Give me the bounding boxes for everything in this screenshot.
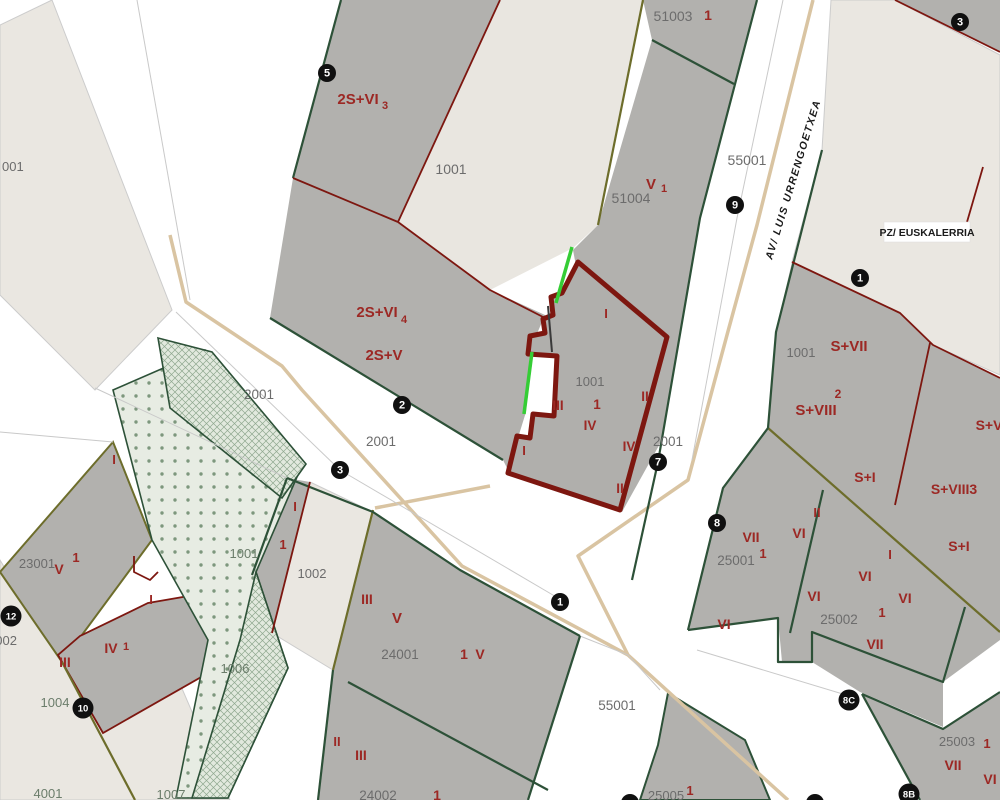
map-label: VII [866, 636, 883, 652]
svg-text:9: 9 [732, 200, 738, 212]
map-label: III [59, 654, 71, 670]
map-label: 51003 [654, 8, 693, 24]
map-label: 1 [704, 7, 712, 23]
map-label: 1 [983, 736, 990, 751]
map-label: 2001 [653, 434, 683, 449]
map-label: 2001 [244, 387, 274, 402]
map-label: 2S+V [365, 347, 402, 364]
map-label: VII [742, 529, 759, 545]
map-label: II [813, 505, 820, 520]
map-label: 24002 [359, 788, 397, 800]
map-label: I [293, 499, 297, 514]
map-label: 55001 [598, 698, 636, 713]
map-label: III [361, 591, 373, 607]
map-label: 1 [72, 550, 79, 565]
street-name-label: PZ/ EUSKALERRIA [879, 227, 975, 239]
map-label: I [888, 547, 892, 562]
map-label: 25001 [717, 553, 755, 568]
map-label: IV [584, 418, 597, 433]
map-label: II [641, 389, 649, 404]
map-label: 001 [2, 159, 24, 174]
map-label: 23001 [19, 556, 55, 571]
map-label: 2 [835, 387, 842, 401]
address-number-circle: 3 [331, 461, 349, 479]
map-label: 4 [401, 314, 408, 326]
map-label: 2001 [366, 434, 396, 449]
address-number-circle: 8C [839, 690, 860, 711]
map-label: 1 [123, 641, 129, 653]
map-label: VI [983, 771, 996, 787]
map-label: IV [623, 439, 636, 454]
address-number-circle: 10 [73, 698, 94, 719]
svg-text:3: 3 [957, 17, 963, 29]
svg-text:8B: 8B [903, 790, 915, 800]
address-number-circle: 1 [551, 593, 569, 611]
map-label: V [475, 646, 485, 662]
svg-text:3: 3 [337, 465, 343, 477]
address-number-circle: 12 [1, 606, 22, 627]
map-label: S+I [854, 469, 875, 485]
map-label: 4001 [34, 786, 63, 800]
map-label: 1001 [230, 546, 259, 561]
address-number-circle: 7 [649, 453, 667, 471]
map-label: S+VIII3 [931, 481, 978, 497]
map-label: VI [898, 590, 911, 606]
map-label: VI [792, 525, 805, 541]
map-label: 25002 [820, 612, 858, 627]
map-label: 24001 [381, 647, 419, 662]
map-label: I [112, 452, 116, 467]
svg-text:10: 10 [78, 704, 89, 715]
svg-text:8: 8 [714, 518, 720, 530]
map-label: S+I [948, 538, 969, 554]
map-label: III [552, 398, 563, 413]
map-label: 1 [279, 537, 286, 552]
svg-text:7: 7 [655, 457, 661, 469]
map-label: 1 [433, 787, 441, 800]
address-number-circle: 8 [708, 514, 726, 532]
map-label: V [54, 561, 64, 577]
map-label: II [333, 734, 340, 749]
address-number-circle: 5 [318, 64, 336, 82]
address-number-circle: 2 [393, 396, 411, 414]
map-label: 1007 [157, 787, 186, 800]
map-label: 1002 [298, 566, 327, 581]
map-label: 1 [460, 646, 468, 662]
map-label: 51004 [612, 190, 651, 206]
map-label: 1 [661, 183, 667, 195]
map-label: 1 [686, 783, 693, 798]
map-label: VII [944, 757, 961, 773]
map-label: I [149, 592, 153, 607]
address-number-circle: 3 [951, 13, 969, 31]
map-canvas[interactable]: AV/ LUIS URRENGOETXEAPZ/ EUSKALERRIA 001… [0, 0, 1000, 800]
map-label: VI [807, 588, 820, 604]
map-label: 1 [593, 397, 601, 412]
map-label: 1001 [435, 161, 466, 177]
svg-text:1: 1 [857, 273, 863, 285]
map-label: 55001 [728, 152, 767, 168]
svg-text:8C: 8C [843, 696, 855, 707]
map-label: S+VII [830, 338, 867, 355]
map-label: 1001 [787, 345, 816, 360]
map-label: S+V [976, 417, 1000, 433]
map-viewport[interactable]: AV/ LUIS URRENGOETXEAPZ/ EUSKALERRIA 001… [0, 0, 1000, 800]
map-label: 25003 [939, 734, 975, 749]
address-number-circle: 1 [851, 269, 869, 287]
map-label: 1 [759, 546, 766, 561]
address-number-circle: 9 [726, 196, 744, 214]
svg-text:1: 1 [557, 597, 563, 609]
map-label: 2S+VI [337, 91, 378, 108]
map-label: I [522, 443, 526, 458]
map-label: V [392, 610, 402, 627]
map-label: 1006 [221, 661, 250, 676]
map-label: 1004 [41, 695, 70, 710]
map-label: S+VIII [795, 402, 836, 419]
map-label: IV [104, 640, 118, 656]
map-label: 1001 [576, 374, 605, 389]
svg-text:5: 5 [324, 68, 330, 80]
svg-text:2: 2 [399, 400, 405, 412]
map-label: I [604, 306, 608, 321]
map-label: VI [717, 616, 730, 632]
svg-text:12: 12 [6, 612, 17, 623]
map-label: III [355, 747, 367, 763]
map-label: 25005 [648, 788, 684, 800]
map-label: VI [858, 568, 871, 584]
map-label: II [616, 481, 624, 496]
map-label: 1002 [0, 633, 17, 648]
map-label: 2S+VI [356, 304, 397, 321]
map-label: 1 [878, 605, 885, 620]
map-label: 3 [382, 100, 388, 112]
